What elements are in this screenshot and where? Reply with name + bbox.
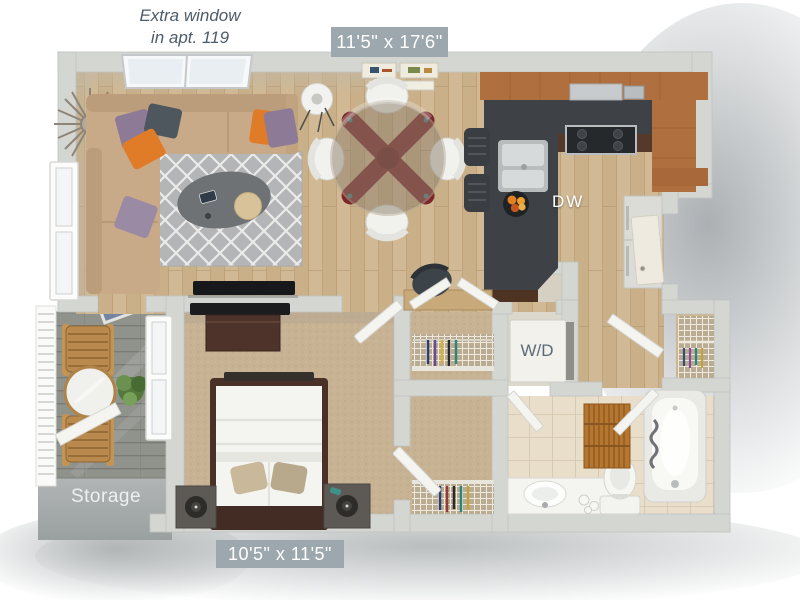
floorplan-rendering	[0, 0, 800, 600]
teak-bath-mat	[584, 404, 630, 468]
kitchen-sink	[498, 140, 548, 192]
wall-bath-north	[550, 382, 602, 396]
tub-faucet	[671, 480, 679, 488]
wall-closet-bath-divider	[492, 300, 508, 532]
floor-plan: Extra window in apt. 119 11'5" x 17'6" 1…	[0, 0, 800, 600]
label-washer-dryer: W/D	[506, 341, 568, 361]
annotation-line-1: Extra window	[92, 5, 288, 27]
living-room-window	[50, 162, 78, 300]
wall-closet-mid	[394, 380, 508, 396]
bathtub	[644, 390, 706, 502]
fruit-bowl	[503, 191, 529, 217]
tv-bedroom	[190, 303, 290, 315]
faucet	[542, 502, 548, 508]
headboard	[210, 506, 328, 530]
wall-bedroom-right-lower	[394, 500, 410, 532]
round-stool	[235, 193, 262, 220]
annotation-line-2: in apt. 119	[92, 27, 288, 49]
label-storage: Storage	[40, 486, 172, 508]
dining-table	[331, 101, 445, 215]
dimension-badge-bedroom: 10'5" x 11'5"	[216, 540, 344, 568]
label-dishwasher: DW	[552, 192, 584, 212]
entry-closet-rack	[678, 316, 714, 378]
bed-pillow	[270, 461, 308, 494]
bedroom-window	[146, 316, 172, 440]
bar-stool	[464, 174, 490, 212]
front-door	[631, 215, 664, 285]
tv-console-living	[188, 281, 298, 298]
range-hood	[570, 84, 644, 100]
bed	[210, 372, 328, 530]
bar-stool	[464, 128, 490, 166]
coat-closet-rack	[412, 334, 494, 371]
faucet	[521, 164, 527, 170]
balcony-railing	[36, 306, 56, 486]
annotation-extra-window: Extra window in apt. 119	[92, 5, 288, 49]
wall-right-lower	[714, 300, 730, 532]
skylight	[122, 55, 252, 88]
dresser	[206, 315, 280, 351]
microwave	[624, 86, 644, 99]
cabinet-end	[652, 168, 708, 186]
wall-bedroom-right-upper	[394, 296, 410, 446]
vanity	[508, 478, 612, 514]
throw-pillow	[263, 108, 299, 149]
nightstand-speaker	[176, 486, 216, 528]
cooktop	[566, 126, 636, 154]
nightstand-speaker	[324, 484, 370, 528]
dimension-badge-living-dining: 11'5" x 17'6"	[331, 27, 448, 57]
bed-bench	[224, 372, 314, 381]
